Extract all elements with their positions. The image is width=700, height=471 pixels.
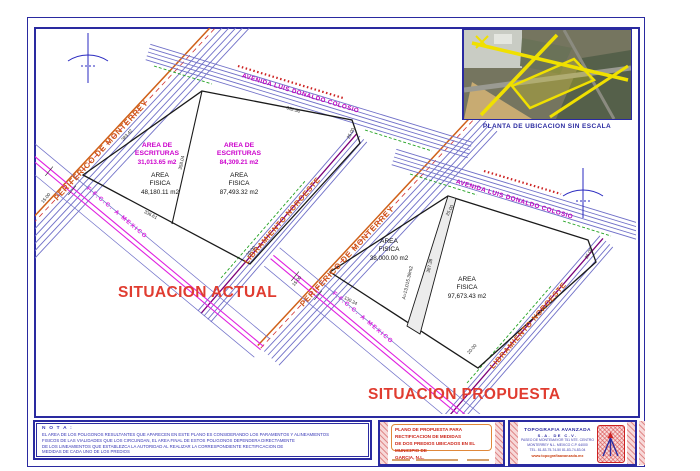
titleblock-microtext <box>467 459 489 461</box>
plan-title: PLANO DE PROPUESTA PARA RECTIFICACION DE… <box>391 424 492 451</box>
svg-text:15.00: 15.00 <box>40 192 52 204</box>
svg-text:20.00: 20.00 <box>466 343 478 355</box>
svg-text:AREA DE: AREA DE <box>142 142 173 149</box>
svg-text:15.00: 15.00 <box>291 275 303 287</box>
nota-line: EL AREA DE LOS POLIGONOS RESULTANTES QUE… <box>42 432 363 438</box>
svg-text:AREA: AREA <box>380 238 398 245</box>
company-phone: TEL. 81-83-75-74-50 81-83-74-83-04 <box>530 448 586 453</box>
area-fisica-east-prop: AREA FISICA 97,673.43 m2 <box>448 276 487 300</box>
company-website: www.topografiaavanzada.mx <box>532 454 584 458</box>
svg-text:87,493.32 m2: 87,493.32 m2 <box>220 189 259 196</box>
svg-text:25.00: 25.00 <box>346 127 356 140</box>
svg-text:ESCRITURAS: ESCRITURAS <box>217 150 262 157</box>
area-fisica-east: AREA FISICA 87,493.32 m2 <box>220 172 259 196</box>
nota-line: MEDIDAS DE CADA UNO DE LOS PREDIOS <box>42 449 363 455</box>
area-escrituras-east: AREA DE ESCRITURAS 84,309.21 m2 <box>217 142 262 166</box>
svg-text:84,309.21 m2: 84,309.21 m2 <box>220 159 259 166</box>
titleblock-hatch-bar <box>510 422 518 464</box>
titleblock-microtext <box>416 459 458 461</box>
titleblock-plan-panel: PLANO DE PROPUESTA PARA RECTIFICACION DE… <box>378 420 505 466</box>
svg-text:336.61: 336.61 <box>143 209 158 220</box>
svg-text:31,013.65 m2: 31,013.65 m2 <box>138 159 177 166</box>
nota-heading: N O T A : <box>42 426 363 431</box>
svg-text:AREA: AREA <box>230 172 248 179</box>
plan-sheet: PERIFERICO DE MONTERREY PERIFERICO DE MO… <box>0 0 700 471</box>
inset-caption: PLANTA DE UBICACION SIN ESCALA <box>462 123 632 130</box>
title-situacion-actual: SITUACION ACTUAL <box>118 284 277 302</box>
svg-text:38,000.00 m2: 38,000.00 m2 <box>370 255 409 262</box>
svg-text:FISICA: FISICA <box>229 180 251 187</box>
area-escrituras-west: AREA DE ESCRITURAS 31,013.65 m2 <box>135 142 180 166</box>
svg-text:AREA: AREA <box>151 172 169 179</box>
area-fisica-west-prop: AREA FISICA 38,000.00 m2 <box>370 238 409 262</box>
plan-title-line: PLANO DE PROPUESTA PARA RECTIFICACION DE… <box>395 427 488 441</box>
titleblock-microtext <box>392 459 410 461</box>
title-situacion-propuesta: SITUACION PROPUESTA <box>368 386 560 404</box>
railway-label-actual: F.F.C.C. A MEXICO <box>85 186 148 241</box>
titleblock-hatch-bar <box>380 422 388 464</box>
road-label-libramiento-propuesta: LIBRAMIENTO NOROESTE <box>488 280 568 371</box>
company-logo <box>597 425 625 463</box>
plan-title-line: DE DOS PREDIOS UBICADOS EN EL MUNICIPIO … <box>395 441 488 455</box>
aerial-photo <box>464 30 631 119</box>
svg-text:ESCRITURAS: ESCRITURAS <box>135 150 180 157</box>
svg-text:AREA DE: AREA DE <box>224 142 255 149</box>
svg-text:FISICA: FISICA <box>150 180 172 187</box>
nota-box: N O T A : EL AREA DE LOS POLIGONOS RESUL… <box>33 420 372 460</box>
titleblock-hatch-bar <box>495 422 503 464</box>
svg-text:AREA: AREA <box>458 276 476 283</box>
location-map-inset <box>462 28 632 120</box>
titleblock-hatch-bar <box>627 422 635 464</box>
titleblock-edge-strip <box>639 421 645 465</box>
svg-text:FISICA: FISICA <box>379 246 401 253</box>
dimension-labels-actual: 352.90 25.00 383.42 358.04 336.61 15.00 … <box>40 105 356 257</box>
titleblock-company-panel: TOPOGRAFIA AVANZADA S.A. DE C.V. PASEO D… <box>508 420 637 466</box>
svg-text:48,180.11 m2: 48,180.11 m2 <box>141 189 180 196</box>
svg-text:FISICA: FISICA <box>457 284 479 291</box>
svg-text:97,673.43 m2: 97,673.43 m2 <box>448 293 487 300</box>
railway-label-propuesta: F.F.C.C. A MEXICO <box>331 291 394 346</box>
sliver-area-label: A=13,015.39m2 <box>401 265 415 300</box>
area-fisica-west: AREA FISICA 48,180.11 m2 <box>141 172 180 196</box>
road-avenida-actual <box>146 44 473 157</box>
road-label-avenida-propuesta: AVENIDA LUIS DONALDO COLOSIO <box>455 178 574 220</box>
north-arrow-icon <box>68 33 108 83</box>
